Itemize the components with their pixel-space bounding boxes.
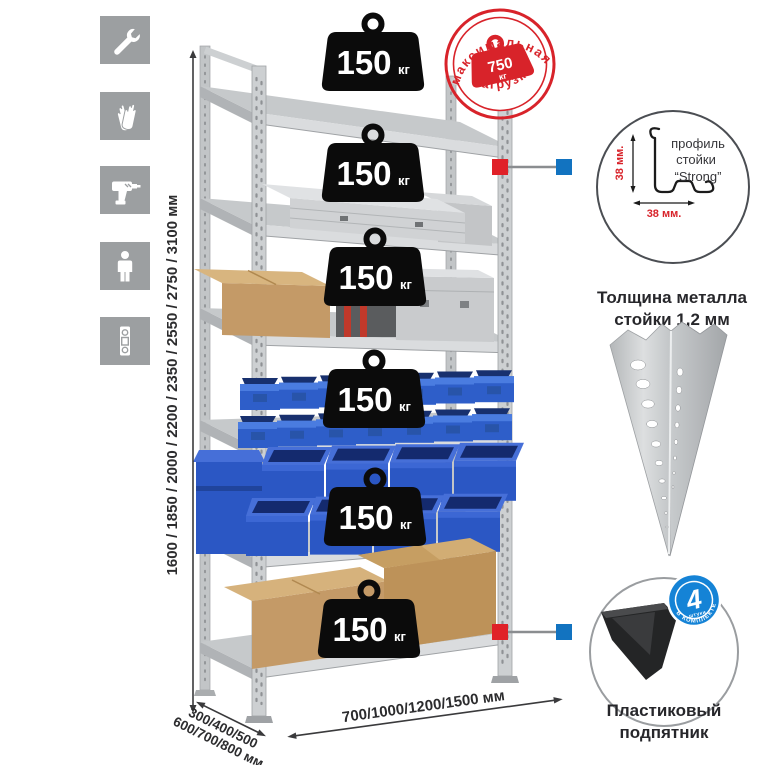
foot-pad (491, 676, 519, 683)
weight-badge: 150кг (322, 16, 424, 92)
callout-connector-bottom (492, 624, 572, 640)
blue-marker (556, 159, 572, 175)
product-infographic: 150кг 150кг 150кг 150кг 150кг 150кг макс… (0, 0, 765, 765)
svg-text:150: 150 (338, 259, 393, 296)
weight-badge: 150кг (323, 353, 425, 429)
svg-text:150: 150 (338, 499, 393, 536)
width-dimension: 700/1000/1200/1500 мм (285, 679, 564, 740)
profile-dim-vertical: 38 мм. (614, 146, 626, 181)
svg-text:150: 150 (336, 155, 391, 192)
callout-connector-top (492, 159, 572, 175)
svg-text:кг: кг (399, 399, 412, 414)
svg-text:150: 150 (332, 611, 387, 648)
main-illustration: 150кг 150кг 150кг 150кг 150кг 150кг макс… (0, 0, 765, 765)
foot-pad (194, 690, 216, 696)
badge-value: 150 (336, 44, 391, 81)
foot-pad (245, 716, 273, 723)
svg-text:кг: кг (394, 629, 407, 644)
foot-caption-line1: Пластиковый (607, 701, 722, 720)
angle-post-image (610, 322, 727, 556)
height-dimension: 1600 / 1850 / 2000 / 2200 / 2350 / 2550 … (164, 50, 197, 713)
blue-marker (556, 624, 572, 640)
profile-dim-horizontal: 38 мм. (647, 208, 682, 220)
profile-label-1: профиль (671, 136, 725, 151)
red-marker (492, 159, 508, 175)
height-label: 1600 / 1850 / 2000 / 2200 / 2350 / 2550 … (164, 195, 181, 576)
profile-label-3: “Strong” (675, 169, 722, 184)
svg-text:150: 150 (337, 381, 392, 418)
badge-unit: кг (398, 62, 411, 77)
foot-detail-circle: 4 штуки в комплекте Пластиковый подпятни… (590, 568, 738, 742)
svg-text:кг: кг (400, 517, 413, 532)
svg-text:кг: кг (400, 277, 413, 292)
profile-detail-circle: 38 мм. 38 мм. профиль стойки “Strong” То… (597, 111, 749, 329)
foot-caption-line2: подпятник (620, 723, 709, 742)
svg-text:кг: кг (398, 173, 411, 188)
profile-label-2: стойки (676, 152, 716, 167)
width-label: 700/1000/1200/1500 мм (341, 687, 506, 726)
profile-caption-line1: Толщина металла (597, 288, 747, 307)
red-marker (492, 624, 508, 640)
